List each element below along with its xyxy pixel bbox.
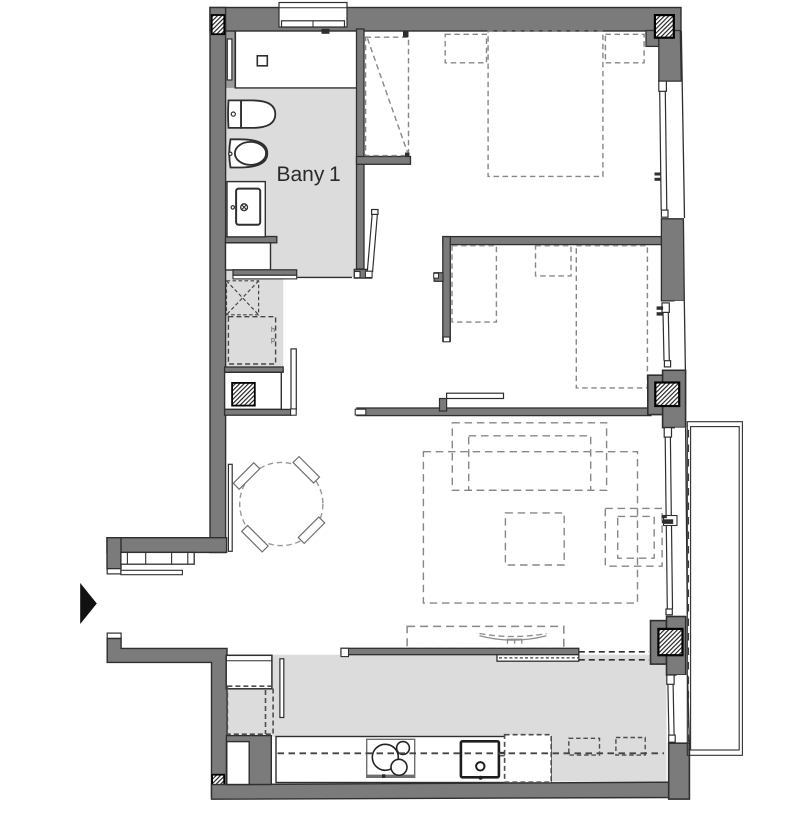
svg-text:h: h — [271, 327, 275, 334]
svg-text:Bany1: Bany1 — [276, 163, 340, 186]
svg-text:p: p — [271, 337, 275, 344]
